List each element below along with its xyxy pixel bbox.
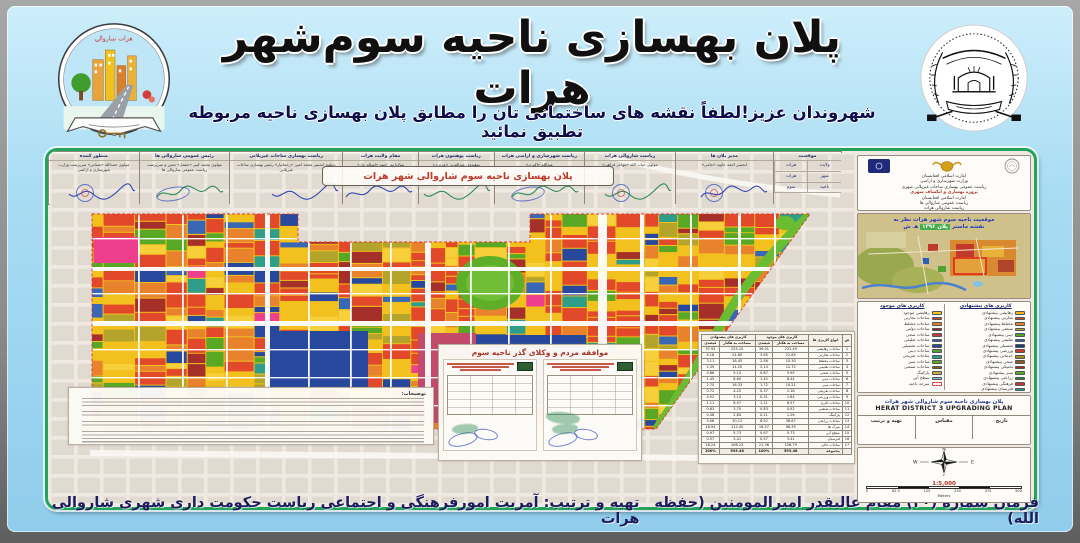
legend-color-chip bbox=[1015, 311, 1025, 315]
legend-color-chip bbox=[1015, 360, 1025, 364]
signature-column-title: ریاست بهسازی ساحات غیرپلانی bbox=[230, 152, 342, 161]
signature-column: مدیر پلان هاانجینیر احمد جاوید «جامی» bbox=[675, 152, 773, 204]
notes-paragraph bbox=[82, 421, 424, 428]
legend-color-chip bbox=[1015, 371, 1025, 375]
map-sidebar: امارت اسلامی افغانستانوزارت شهرسازی و ار… bbox=[857, 155, 1031, 503]
legend-color-chip bbox=[1015, 344, 1025, 348]
signature-column: منظور کنندهمولوی حمدالله «نعمانی» سرپرست… bbox=[49, 152, 139, 204]
signature-name: انجینیر احمد جاوید «جامی» bbox=[676, 161, 773, 168]
round-blue-stamp bbox=[612, 184, 630, 202]
agreement-title: موافقه مردم و وکلای گذر ناحیه سوم bbox=[443, 348, 637, 357]
org-line: ریاست شاروالی هرات bbox=[862, 206, 1026, 211]
legend-color-chip bbox=[1015, 322, 1025, 326]
legend-color-chip bbox=[932, 322, 942, 326]
legend-color-chip bbox=[932, 360, 942, 364]
compass-s: S bbox=[943, 474, 946, 476]
compass-e: E bbox=[971, 460, 974, 466]
scale-bar-segment bbox=[867, 487, 898, 488]
legend-existing-column: کاربری های موجود رهایشی موجودساحات تجارت… bbox=[861, 304, 945, 390]
legend-color-chip bbox=[1015, 388, 1025, 392]
stamp-center bbox=[81, 189, 89, 197]
petition-document bbox=[543, 359, 637, 451]
green-stamp-box bbox=[517, 362, 533, 371]
signature-name: مولوی محمد کبیر «حقمل» معین و سرپرست ریا… bbox=[140, 161, 230, 173]
legend-color-chip bbox=[932, 311, 942, 315]
location-value: هرات bbox=[774, 161, 808, 172]
signature-name: مولوی حمدالله «نعمانی» سرپرست وزارت شهرس… bbox=[49, 161, 139, 173]
org-text-lines: امارت اسلامی افغانستانوزارت شهرسازی و ار… bbox=[862, 174, 1026, 211]
title-block-box: پلان بهسازی ناحیه سوم شاروالی شهر هرات H… bbox=[857, 395, 1031, 445]
scale-tick-label: 125 bbox=[924, 489, 931, 493]
compass-n: N bbox=[942, 448, 945, 453]
legend-color-chip bbox=[932, 366, 942, 370]
signature-location-column: موقعیتولایتهراتشهرهراتناحیهسوم bbox=[773, 152, 841, 204]
legend-color-chip bbox=[1015, 355, 1025, 359]
petition-table bbox=[447, 375, 533, 415]
inset-title: موقعیت ناحیه سوم شهر هرات نظر به نقشه ما… bbox=[858, 217, 1030, 231]
compass-w: W bbox=[913, 460, 918, 466]
footer-prepared-by-text: تهیه و ترتیب: آمریت امورفرهنگی و اجتماعی… bbox=[41, 495, 639, 527]
scale-tick-label: 250 bbox=[954, 489, 961, 493]
signature-column: رئیس عمومی شاروالی هامولوی محمد کبیر «حق… bbox=[139, 152, 230, 204]
title-block-cell: مقیاس bbox=[915, 416, 973, 439]
legend-color-chip bbox=[932, 333, 942, 337]
notes-title: توضیحات: bbox=[76, 391, 426, 397]
scale-bar: 062.5125250375500 Meters bbox=[866, 486, 1022, 498]
legend-color-chip bbox=[1015, 328, 1025, 332]
stats-header-cell: مساحت به هکتار bbox=[773, 341, 809, 347]
signature-column-title: ریاست پوهنتون هرات bbox=[419, 152, 494, 161]
islamic-emirate-emblem bbox=[919, 22, 1029, 134]
scale-tick-label: 375 bbox=[985, 489, 992, 493]
signature-scribble bbox=[59, 182, 139, 204]
location-value: سوم bbox=[774, 183, 808, 194]
location-inset-box: موقعیت ناحیه سوم شهر هرات نظر به نقشه ما… bbox=[857, 213, 1031, 299]
map-title-box: پلان بهسازی ناحیه سوم شاروالی شهر هرات bbox=[322, 166, 614, 186]
notes-box: توضیحات: bbox=[68, 387, 434, 445]
gold-emblem-icon bbox=[932, 158, 962, 174]
logo-arc-text: هرات ښاروالۍ bbox=[94, 35, 132, 42]
gray-seal-icon bbox=[1004, 158, 1020, 174]
legend-color-chip bbox=[932, 344, 942, 348]
legend-color-chip bbox=[1015, 377, 1025, 381]
scale-bar-segment bbox=[898, 487, 929, 488]
agreement-box: موافقه مردم و وکلای گذر ناحیه سوم bbox=[438, 344, 642, 461]
legend-color-chip bbox=[1015, 339, 1025, 343]
landuse-stats-table: شانواع کاربری هاکاربری های موجودکاربری ه… bbox=[701, 334, 852, 455]
scale-bar-segment bbox=[959, 487, 990, 488]
letterhead-line bbox=[560, 369, 600, 371]
legend-color-chip bbox=[1015, 333, 1025, 337]
stats-total-row: مجموعه593.48100%593.48100% bbox=[702, 449, 852, 455]
title-block-cell: تهیه و ترتیب bbox=[858, 416, 915, 439]
legend-proposed-title: کاربری های پیشنهادی bbox=[947, 304, 1026, 309]
legend-item-label: ساحات تعلیمی bbox=[904, 338, 930, 343]
letterhead-line bbox=[447, 363, 514, 365]
stamp-center bbox=[617, 189, 625, 197]
legend-color-chip bbox=[1015, 382, 1025, 386]
notes-paragraph bbox=[82, 411, 424, 418]
legend-color-chip bbox=[1015, 349, 1025, 353]
page-subtitle: شهروندان عزیز!لطفاً نقشه های ساختمانی تا… bbox=[182, 103, 882, 141]
page-title: پلان بهسازی ناحیه سوم‌شهر هرات bbox=[182, 12, 882, 114]
stats-header-cell: ش bbox=[842, 335, 851, 347]
round-blue-stamp bbox=[705, 184, 723, 202]
scale-bar-segment bbox=[929, 487, 960, 488]
legend-color-chip bbox=[1015, 317, 1025, 321]
scale-tick-label: 0 bbox=[866, 489, 868, 493]
signature-column-title: ریاست شهرسازی و اراضی هرات bbox=[495, 152, 585, 161]
legend-item-label: تعلیمی پیشنهادی bbox=[984, 338, 1013, 343]
signature-column-title: منظور کننده bbox=[49, 152, 139, 161]
legend-proposed-column: کاربری های پیشنهادی رهایشی پیشنهادیتجارت… bbox=[945, 304, 1028, 390]
legend-color-chip bbox=[932, 339, 942, 343]
compass-rose-icon: N S E W bbox=[858, 448, 1030, 476]
legend-color-chip bbox=[932, 328, 942, 332]
legend-color-chip bbox=[932, 355, 942, 359]
location-label: شهر bbox=[807, 172, 841, 183]
scale-meters-label: Meters bbox=[866, 493, 1022, 498]
year-highlight: پلان ۱۳۹۶ bbox=[920, 224, 950, 230]
green-stamp-box bbox=[617, 362, 633, 371]
legend-item-label: قبرستان پیشنهادی bbox=[981, 387, 1013, 392]
round-blue-stamp bbox=[76, 184, 94, 202]
plan-card: پلان بهسازی ناحیه سوم شاروالی شهر هرات ت… bbox=[45, 148, 1037, 510]
legend-color-chip bbox=[932, 382, 942, 386]
legend-item: قبرستان پیشنهادی bbox=[947, 387, 1026, 392]
location-value: هرات bbox=[774, 172, 808, 183]
letterhead-line bbox=[552, 366, 609, 368]
legend-box: کاربری های پیشنهادی رهایشی پیشنهادیتجارت… bbox=[857, 301, 1031, 393]
legend-color-chip bbox=[932, 349, 942, 353]
letterhead-line bbox=[460, 369, 500, 371]
legend-item: سرحد ناحیه bbox=[863, 381, 942, 386]
compass-scale-box: N S E W 1:5,000 062.5125250375500 Meters bbox=[857, 447, 1031, 503]
tree-icon bbox=[71, 73, 90, 92]
legend-color-chip bbox=[932, 377, 942, 381]
location-label: ولایت bbox=[807, 161, 841, 172]
legend-color-chip bbox=[932, 371, 942, 375]
poster: پلان بهسازی ناحیه سوم‌شهر هرات شهروندان … bbox=[0, 0, 1080, 543]
title-block-cell: تاریخ bbox=[972, 416, 1030, 439]
legend-color-chip bbox=[932, 317, 942, 321]
stats-header-cell: مساحت به هکتار bbox=[719, 341, 755, 347]
herat-municipality-logo: هرات ښاروالۍ bbox=[55, 19, 173, 145]
petition-document bbox=[443, 359, 537, 451]
location-grid: ولایتهراتشهرهراتناحیهسوم bbox=[774, 161, 841, 193]
legend-existing-title: کاربری های موجود bbox=[863, 304, 942, 309]
poster-sheet: پلان بهسازی ناحیه سوم‌شهر هرات شهروندان … bbox=[7, 6, 1073, 532]
signature-column-title: موقعیت bbox=[774, 152, 841, 161]
location-label: ناحیه bbox=[807, 183, 841, 194]
signature-column-title: مدیر پلان ها bbox=[676, 152, 773, 161]
stamp-center bbox=[710, 189, 718, 197]
scale-tick-label: 500 bbox=[1015, 489, 1022, 493]
notes-paragraph bbox=[82, 398, 424, 408]
blue-flag-icon bbox=[868, 159, 890, 173]
signature-column-title: رئیس عمومی شاروالی ها bbox=[140, 152, 230, 161]
notes-paragraph bbox=[82, 431, 424, 445]
petition-table bbox=[547, 375, 633, 415]
org-header-box: امارت اسلامی افغانستانوزارت شهرسازی و ار… bbox=[857, 155, 1031, 211]
stats-header-cell: انواع کاربری ها bbox=[809, 335, 843, 347]
scale-bar-segment bbox=[990, 487, 1021, 488]
title-block-en: HERAT DISTRICT 3 UPGRADING PLAN bbox=[858, 405, 1030, 412]
legend-color-chip bbox=[1015, 366, 1025, 370]
signature-column-title: مقام ولایت هرات bbox=[343, 152, 418, 161]
letterhead-line bbox=[547, 363, 614, 365]
legend-item-label: سرحد ناحیه bbox=[909, 382, 929, 387]
landuse-stats-box: شانواع کاربری هاکاربری های موجودکاربری ه… bbox=[698, 331, 855, 464]
signature-column-title: ریاست شاروالی هرات bbox=[585, 152, 675, 161]
letterhead-line bbox=[452, 366, 509, 368]
scale-tick-label: 62.5 bbox=[892, 489, 900, 493]
